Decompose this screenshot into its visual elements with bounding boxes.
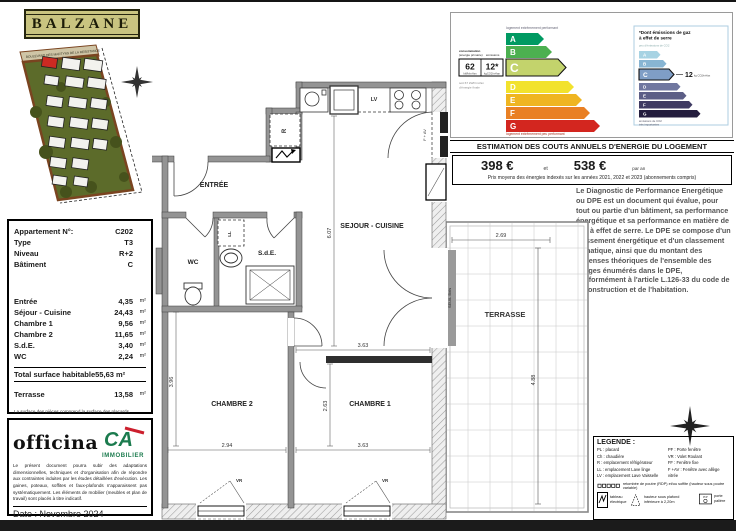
row-value: 3,40 — [103, 340, 133, 351]
cost-suffix: par an — [632, 166, 645, 171]
room-label-sejour: SEJOUR - CUISINE — [340, 223, 404, 230]
row-label: Chambre 1 — [14, 318, 103, 329]
ges-title-2: à effet de serre — [639, 36, 672, 41]
row-label: Type — [14, 237, 103, 248]
conso-header-3: émissions — [486, 53, 500, 57]
class-bar-G — [639, 110, 701, 118]
row-unit: m² — [133, 340, 146, 351]
room-label-entree: ENTRÉE — [200, 180, 229, 189]
legend-item: LV : emplacement Lave Vaisselle — [597, 473, 668, 480]
row-value: C — [103, 259, 133, 270]
row-label: Entrée — [14, 296, 103, 307]
beam-pattern-icon — [597, 483, 621, 489]
dim-ch1-top: 3.63 — [358, 343, 369, 349]
class-letter-G: G — [643, 111, 647, 116]
row-label: Bâtiment — [14, 259, 103, 270]
ca-monogram: CA — [104, 429, 133, 451]
dimension-labels: 6.07 3.63 2.63 3.96 2.94 3.63 — [169, 228, 368, 449]
table-row: Séjour - Cuisine 24,43 m² — [14, 307, 146, 318]
legend-pp-abbr: P.P — [703, 494, 707, 498]
terrace-row: Terrasse 13,58 m² — [14, 389, 146, 400]
bath-fixtures — [184, 249, 294, 305]
row-value: C202 — [103, 226, 133, 237]
ca-immobilier-logo: CA IMMOBILIER — [101, 424, 147, 462]
table-row: WC 2,24 m² — [14, 351, 146, 362]
row-label: Chambre 2 — [14, 329, 103, 340]
legend-ceiling-note: hauteur sous plafond inférieure à 2,20m — [644, 495, 695, 504]
row-unit: m² — [133, 296, 146, 307]
table-row: Type T3 — [14, 237, 146, 248]
dpe-emission-value: 12* — [486, 62, 499, 72]
legend-title: LEGENDE : — [597, 439, 730, 446]
compass-icon — [121, 66, 153, 98]
room-label-terrasse: TERRASSE — [485, 310, 526, 319]
class-letter-F: F — [643, 102, 646, 107]
label-vr-2: VR — [382, 478, 389, 483]
terrace: TERRASSE 2.69 4.88 SEUIL Bois — [444, 222, 588, 512]
ges-title-1: *Dont émissions de gaz — [639, 30, 691, 35]
ca-label: IMMOBILIER — [102, 453, 144, 459]
row-unit: m² — [133, 389, 146, 400]
label-lv: LV — [371, 97, 378, 103]
row-label: Niveau — [14, 248, 103, 259]
row-value: T3 — [103, 237, 133, 248]
row-label: Terrasse — [14, 389, 103, 400]
row-value: 11,65 — [103, 329, 133, 340]
site-plan: BOULEVARD DES MARTYRS DE LA RESISTANCE — [6, 42, 156, 204]
table-row: Chambre 2 11,65 m² — [14, 329, 146, 340]
row-value: 13,58 — [103, 389, 133, 400]
legend-electrical-2: électrique — [610, 500, 626, 504]
legend-pp-label: porte palière — [714, 494, 730, 503]
class-bar-E — [639, 92, 687, 100]
row-value: 4,35 — [103, 296, 133, 307]
electric-panel-legend-icon — [597, 492, 608, 508]
wall-chambre1-top — [326, 356, 432, 363]
row-value: 2,24 — [103, 351, 133, 362]
electric-panel-icon — [272, 148, 300, 162]
room-label-chambre1: CHAMBRE 1 — [349, 401, 391, 408]
doors — [174, 112, 432, 388]
walls-exterior — [162, 82, 448, 520]
dim-ch2-left: 3.96 — [169, 377, 175, 388]
top-rule — [0, 0, 736, 2]
floor-plan: TERRASSE 2.69 4.88 SEUIL Bois — [152, 78, 596, 522]
total-value: 55,63 m² — [95, 370, 125, 379]
legend-box: LEGENDE : PL : placard Ch : chaudière R … — [593, 436, 734, 520]
row-unit: m² — [133, 329, 146, 340]
door-label-fav: F + AV — [422, 129, 427, 141]
label-ll: LL — [227, 231, 232, 237]
dpe-emission-unit: kgCO2/m²/an — [484, 72, 500, 76]
room-label-chambre2: CHAMBRE 2 — [211, 401, 253, 408]
class-letter-A: A — [510, 35, 516, 44]
legend-item: F +AV : Fenêtre avec allège vitrée — [668, 467, 730, 480]
disclaimer-text: Le présent document pourra subir des ada… — [13, 463, 147, 503]
row-label: WC — [14, 351, 103, 362]
table-row: Appartement N°: C202 — [14, 226, 146, 237]
ceiling-slope-icon — [630, 492, 641, 508]
class-letter-E: E — [643, 93, 646, 98]
row-value: R+2 — [103, 248, 133, 259]
date-label: Date : Novembre 2024 — [13, 506, 147, 519]
floorplan-sheet: BALZANE BOULEVARD DES MARTYRS DE LA RESI… — [0, 0, 736, 531]
label-r: R — [282, 128, 288, 133]
row-label: Appartement N°: — [14, 226, 103, 237]
toilet — [185, 287, 201, 305]
row-unit: m² — [133, 307, 146, 318]
dpe-conso-value: 62 — [465, 62, 475, 72]
legend-electrical-1: tableau — [610, 495, 622, 499]
row-label: Séjour - Cuisine — [14, 307, 103, 318]
class-bar-F — [639, 101, 693, 109]
room-label-sde: S.d.E. — [258, 250, 276, 257]
class-letter-C: C — [510, 61, 519, 75]
legend-right-column: PF : Porte fenêtre VR : Volet Roulant FF… — [668, 447, 730, 480]
row-value: 24,43 — [103, 307, 133, 318]
table-row: S.d.E. 3,40 m² — [14, 340, 146, 351]
kitchen-fixtures — [218, 86, 426, 246]
row-label: S.d.E. — [14, 340, 103, 351]
dim-label-terrace-h: 4.88 — [531, 375, 537, 386]
room-label-wc: WC — [188, 259, 199, 266]
surface-note: La surface des pièces comprend la surfac… — [14, 409, 146, 414]
bottom-rule — [0, 520, 736, 531]
table-row: Entrée 4,35 m² — [14, 296, 146, 307]
table-row: Chambre 1 9,56 m² — [14, 318, 146, 329]
legend-beam-note: retombée de poutre (RDP) et/ou soffite (… — [623, 482, 730, 490]
dim-ch1-h: 2.63 — [323, 401, 329, 412]
dpe-conso-unit: kWh/m²/an — [464, 72, 477, 76]
total-label: Total surface habitable — [14, 370, 95, 379]
dim-ch2-w: 2.94 — [222, 443, 233, 449]
dpe-caption-top: logement extrêmement performant — [506, 26, 558, 30]
row-value: 9,56 — [103, 318, 133, 329]
branding-box: officina CA IMMOBILIER Le présent docume… — [7, 418, 153, 516]
dim-ch1-w: 3.63 — [358, 443, 369, 449]
ges-caption-top: peu d'émissions de CO2 — [639, 44, 670, 48]
dpe-description: Le Diagnostic de Performance Energétique… — [576, 186, 733, 295]
legend-left-column: PL : placard Ch : chaudière R : emplacem… — [597, 447, 668, 480]
row-unit: m² — [133, 318, 146, 329]
ges-caption-bottom-2: très importantes — [639, 123, 660, 127]
project-title: BALZANE — [25, 14, 140, 35]
cooktop — [390, 88, 426, 112]
class-letter-B: B — [510, 48, 516, 57]
ges-value: 12 — [685, 72, 693, 79]
label-vr-1: VR — [236, 478, 243, 483]
apartment-info-table: Appartement N°: C202 Type T3 Niveau R+2 … — [7, 219, 153, 414]
project-title-box: BALZANE — [24, 9, 140, 39]
table-row: Bâtiment C — [14, 259, 146, 270]
dim-label-terrace-w: 2.69 — [496, 233, 507, 239]
row-unit: m² — [133, 351, 146, 362]
dim-sejour-h: 6.07 — [327, 228, 333, 239]
table-row: Niveau R+2 — [14, 248, 146, 259]
total-surface-row: Total surface habitable 55,63 m² — [14, 367, 146, 382]
landing-door-icon: P.P — [699, 492, 712, 506]
ges-unit: kg CO2/m²/an — [694, 74, 711, 78]
conso-header-2: (énergie primaire) — [459, 53, 483, 57]
class-letter-C: C — [643, 72, 648, 79]
officina-logo: officina — [13, 432, 98, 454]
